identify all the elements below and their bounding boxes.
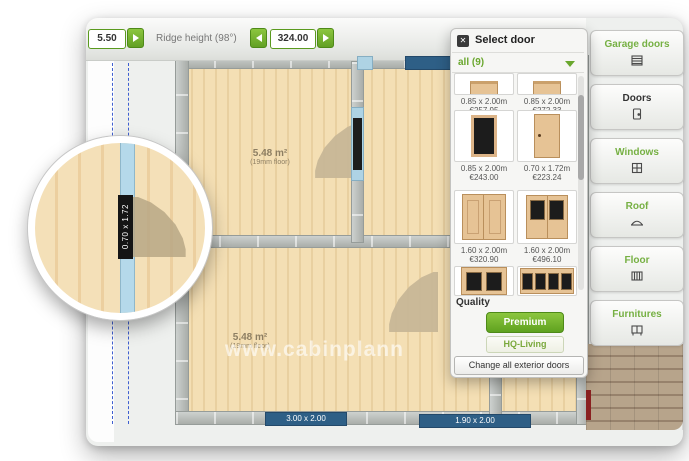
door-knob bbox=[538, 134, 541, 137]
door-glass-pane bbox=[530, 200, 545, 220]
sidebar-item-floor[interactable]: Floor bbox=[590, 246, 684, 292]
door-image-glazed bbox=[471, 115, 497, 157]
door-option[interactable]: 1.60 x 2.00m €320.90 bbox=[454, 190, 514, 264]
divider bbox=[452, 52, 584, 53]
door-icon bbox=[629, 106, 645, 122]
door-size: 0.85 x 2.00m bbox=[454, 97, 514, 106]
door-panel-line bbox=[489, 200, 501, 234]
sidebar-item-roof[interactable]: Roof bbox=[590, 192, 684, 238]
sidebar-item-garage-doors[interactable]: Garage doors bbox=[590, 30, 684, 76]
door-image-slider bbox=[520, 268, 574, 294]
room-area-text: 5.48 m² bbox=[205, 148, 335, 159]
floor-icon bbox=[629, 268, 645, 284]
window-dimension-badge[interactable]: 3.00 x 2.00 bbox=[266, 413, 346, 425]
door-thumbnail bbox=[454, 73, 514, 95]
door-image bbox=[470, 81, 498, 95]
door-price: €496.10 bbox=[517, 255, 577, 264]
magnified-door-size-text: 0.70 x 1.72 bbox=[121, 204, 130, 249]
door-price: €223.24 bbox=[517, 173, 577, 182]
ridge-height-decrease-button[interactable] bbox=[250, 28, 267, 48]
door-thumbnail bbox=[454, 190, 514, 244]
sidebar-item-label: Roof bbox=[626, 201, 649, 212]
sidebar-item-doors[interactable]: Doors bbox=[590, 84, 684, 130]
ridge-height-label: Ridge height (98°) bbox=[156, 33, 237, 44]
door-glass-pane bbox=[548, 273, 559, 290]
sidebar-item-label: Doors bbox=[623, 93, 652, 104]
door-caption: 1.60 x 2.00m €496.10 bbox=[517, 246, 577, 264]
door-size: 0.70 x 1.72m bbox=[517, 164, 577, 173]
premium-quality-button[interactable]: Premium bbox=[486, 312, 564, 333]
door-option[interactable]: 0.85 x 2.00m €243.00 bbox=[454, 110, 514, 182]
panel-scrollbar-thumb[interactable] bbox=[578, 95, 584, 180]
door-glass-pane bbox=[561, 273, 572, 290]
door-thumbnail bbox=[454, 110, 514, 162]
panel-title: Select door bbox=[475, 34, 535, 46]
door-image bbox=[533, 81, 561, 95]
door-price: €320.90 bbox=[454, 255, 514, 264]
door-option[interactable]: 0.85 x 2.00m €257.95 bbox=[454, 73, 514, 115]
door-thumbnail bbox=[517, 266, 577, 296]
door-option[interactable]: 1.60 x 2.00m €496.10 bbox=[517, 190, 577, 264]
magnifier-circle: 0.70 x 1.72 bbox=[28, 136, 212, 320]
garage-door-icon bbox=[629, 52, 645, 68]
window-icon bbox=[629, 160, 645, 176]
opening-top-wall[interactable] bbox=[358, 57, 372, 69]
door-glass-pane bbox=[549, 200, 564, 220]
room-label: 5.48 m² (19mm floor) bbox=[205, 148, 335, 166]
chevron-down-icon[interactable] bbox=[565, 61, 575, 67]
door-size: 1.60 x 2.00m bbox=[517, 246, 577, 255]
door-caption: 1.60 x 2.00m €320.90 bbox=[454, 246, 514, 264]
door-size-badge[interactable] bbox=[353, 118, 362, 170]
door-caption: 0.85 x 2.00m €243.00 bbox=[454, 164, 514, 182]
deck-accent-strip bbox=[586, 390, 591, 420]
app-window: 5.50 Ridge height (98°) 324.00 5.48 m² (… bbox=[0, 0, 689, 461]
door-thumbnail bbox=[517, 110, 577, 162]
close-icon[interactable]: ✕ bbox=[457, 35, 469, 47]
arrow-left-icon bbox=[256, 34, 262, 42]
arrow-right-icon bbox=[133, 34, 139, 42]
door-price: €243.00 bbox=[454, 173, 514, 182]
change-all-exterior-doors-button[interactable]: Change all exterior doors bbox=[454, 356, 584, 375]
watermark-text: www.cabinplann bbox=[225, 338, 404, 362]
door-glass-pane bbox=[535, 273, 546, 290]
quality-label: Quality bbox=[456, 297, 490, 308]
sidebar-item-label: Furnitures bbox=[612, 309, 661, 320]
door-size: 1.60 x 2.00m bbox=[454, 246, 514, 255]
door-glass-pane bbox=[522, 273, 533, 290]
door-option[interactable]: 0.70 x 1.72m €223.24 bbox=[517, 110, 577, 182]
furniture-icon bbox=[629, 322, 645, 338]
sidebar-item-label: Windows bbox=[615, 147, 659, 158]
ridge-height-increase-button[interactable] bbox=[317, 28, 334, 48]
door-panel-line bbox=[467, 200, 479, 234]
door-image-double bbox=[462, 194, 506, 240]
wall-length-value[interactable]: 5.50 bbox=[88, 29, 126, 49]
door-option[interactable] bbox=[454, 266, 514, 296]
door-thumbnail bbox=[517, 190, 577, 244]
sidebar-item-windows[interactable]: Windows bbox=[590, 138, 684, 184]
door-filter-dropdown[interactable]: all (9) bbox=[458, 57, 484, 68]
room-floor-note: (19mm floor) bbox=[205, 159, 335, 166]
sidebar-item-furnitures[interactable]: Furnitures bbox=[590, 300, 684, 346]
hq-living-quality-button[interactable]: HQ-Living bbox=[486, 336, 564, 353]
roof-icon bbox=[629, 214, 645, 230]
door-image-plain bbox=[534, 114, 560, 158]
door-image-wide-glazed bbox=[461, 267, 507, 295]
door-size: 0.85 x 2.00m bbox=[517, 97, 577, 106]
sidebar-item-label: Floor bbox=[625, 255, 650, 266]
sidebar-item-label: Garage doors bbox=[604, 39, 669, 50]
magnified-door-swing-arc bbox=[133, 197, 189, 257]
wall-length-increase-button[interactable] bbox=[127, 28, 144, 48]
door-thumbnail bbox=[517, 73, 577, 95]
door-dimension-badge[interactable]: 1.90 x 2.00 bbox=[420, 415, 530, 427]
door-glass-pane bbox=[486, 272, 502, 291]
door-option[interactable]: 0.85 x 2.00m €272.33 bbox=[517, 73, 577, 115]
door-thumbnail bbox=[454, 266, 514, 296]
ridge-height-value[interactable]: 324.00 bbox=[270, 29, 316, 49]
door-caption: 0.70 x 1.72m €223.24 bbox=[517, 164, 577, 182]
terrace-deck-plank-joints bbox=[586, 344, 683, 430]
arrow-right-icon bbox=[323, 34, 329, 42]
door-image-double-glazed bbox=[526, 195, 568, 239]
door-glass-pane bbox=[466, 272, 482, 291]
door-option[interactable] bbox=[517, 266, 577, 296]
door-size: 0.85 x 2.00m bbox=[454, 164, 514, 173]
window-top-wall[interactable] bbox=[406, 57, 450, 69]
magnified-door-size-badge: 0.70 x 1.72 bbox=[118, 195, 133, 259]
